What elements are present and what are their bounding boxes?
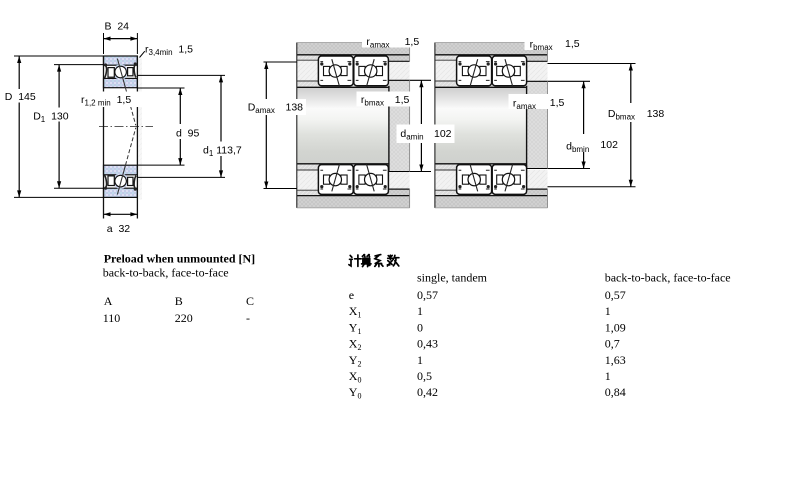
svg-text:d1 113,7: d1 113,7 <box>203 144 242 158</box>
svg-text:0,57: 0,57 <box>605 288 626 302</box>
svg-text:0: 0 <box>417 320 423 334</box>
svg-text:110: 110 <box>103 311 121 325</box>
svg-text:X0: X0 <box>349 369 362 385</box>
svg-text:Y1: Y1 <box>349 320 362 336</box>
svg-text:back-to-back, face-to-face: back-to-back, face-to-face <box>605 270 731 284</box>
svg-text:a 32: a 32 <box>107 223 131 235</box>
svg-text:1: 1 <box>417 304 423 318</box>
svg-text:A: A <box>104 294 113 308</box>
svg-text:1: 1 <box>605 369 611 383</box>
svg-text:1,5: 1,5 <box>550 97 565 109</box>
svg-text:0,42: 0,42 <box>417 385 438 399</box>
svg-text:D 145: D 145 <box>5 91 36 103</box>
svg-text:138: 138 <box>286 101 304 113</box>
svg-text:0,43: 0,43 <box>417 337 438 351</box>
svg-text:138: 138 <box>647 108 665 120</box>
svg-text:0,7: 0,7 <box>605 337 620 351</box>
svg-text:102: 102 <box>434 128 452 140</box>
svg-text:C: C <box>246 294 254 308</box>
svg-text:0,84: 0,84 <box>605 385 626 399</box>
svg-text:1,5: 1,5 <box>405 36 420 48</box>
svg-text:r3,4min 1,5: r3,4min 1,5 <box>145 43 193 57</box>
svg-text:1: 1 <box>605 304 611 318</box>
svg-text:-: - <box>246 311 250 325</box>
svg-text:back-to-back, face-to-face: back-to-back, face-to-face <box>103 265 229 279</box>
svg-text:X2: X2 <box>349 337 362 353</box>
svg-text:B: B <box>175 294 183 308</box>
svg-text:D1 130: D1 130 <box>33 111 69 125</box>
svg-text:220: 220 <box>175 311 193 325</box>
svg-text:1,5: 1,5 <box>395 94 410 106</box>
svg-text:1,63: 1,63 <box>605 353 626 367</box>
svg-text:1,5: 1,5 <box>565 38 580 50</box>
svg-text:X1: X1 <box>349 304 362 320</box>
svg-text:1: 1 <box>417 353 423 367</box>
svg-text:Y0: Y0 <box>349 385 362 401</box>
svg-text:B 24: B 24 <box>105 21 130 33</box>
svg-text:d 95: d 95 <box>176 127 200 139</box>
svg-text:e: e <box>349 288 354 302</box>
svg-text:Y2: Y2 <box>349 353 362 369</box>
svg-text:0,57: 0,57 <box>417 288 438 302</box>
svg-text:102: 102 <box>600 139 618 151</box>
svg-text:0,5: 0,5 <box>417 369 432 383</box>
svg-text:1,09: 1,09 <box>605 320 626 334</box>
svg-text:Preload when unmounted [N]: Preload when unmounted [N] <box>104 252 255 266</box>
svg-text:single, tandem: single, tandem <box>417 270 488 284</box>
